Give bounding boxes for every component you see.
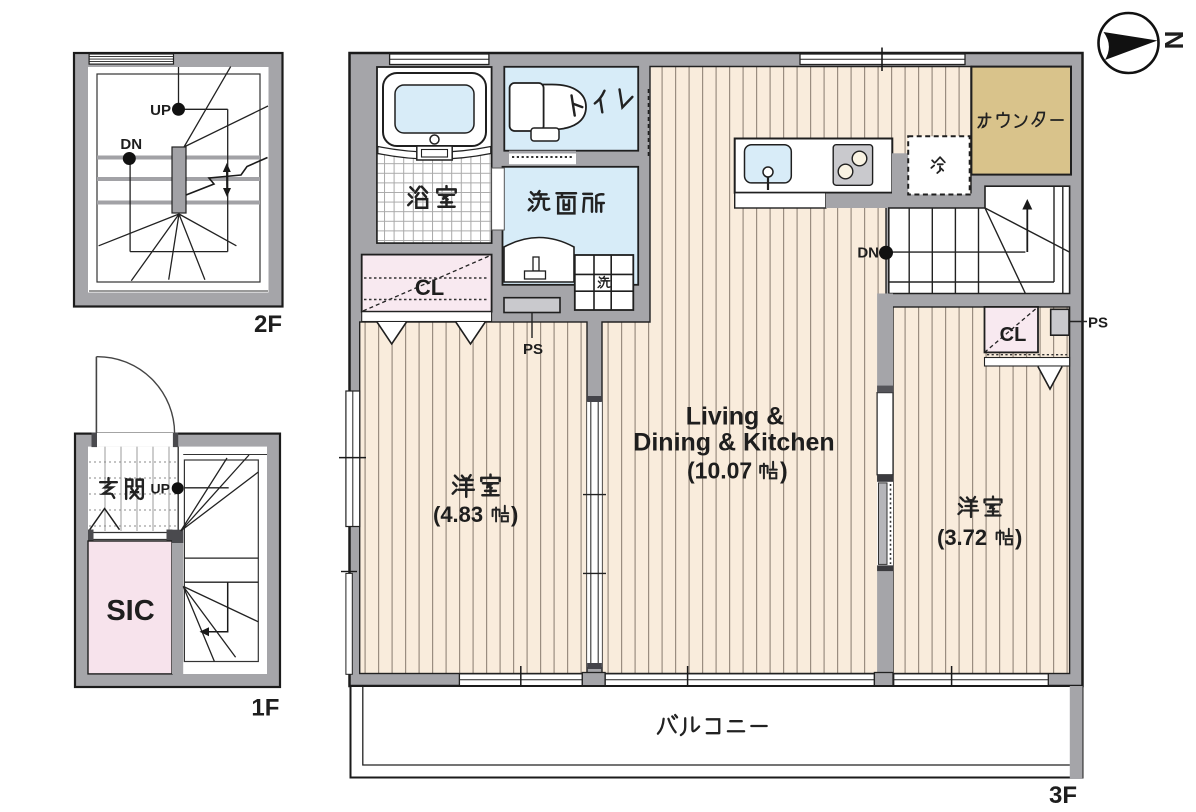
svg-text:UP: UP xyxy=(151,481,170,497)
svg-text:CL: CL xyxy=(415,275,444,300)
svg-text:(4.83: (4.83 xyxy=(433,502,483,527)
svg-text:2F: 2F xyxy=(254,311,282,338)
svg-text:): ) xyxy=(780,458,788,484)
svg-text:PS: PS xyxy=(1088,315,1108,332)
svg-text:3F: 3F xyxy=(1049,782,1077,809)
svg-text:CL: CL xyxy=(1000,324,1027,346)
svg-text:): ) xyxy=(1015,525,1022,550)
svg-text:UP: UP xyxy=(150,102,171,119)
svg-text:PS: PS xyxy=(523,341,543,358)
svg-text:(10.07: (10.07 xyxy=(687,458,752,484)
svg-text:Dining & Kitchen: Dining & Kitchen xyxy=(633,429,834,457)
svg-text:SIC: SIC xyxy=(106,595,154,627)
svg-text:(3.72: (3.72 xyxy=(937,525,987,550)
svg-text:DN: DN xyxy=(857,245,879,262)
svg-text:1F: 1F xyxy=(251,695,279,722)
svg-text:DN: DN xyxy=(120,136,142,153)
svg-text:): ) xyxy=(511,502,518,527)
svg-text:N: N xyxy=(1159,31,1189,50)
svg-text:Living &: Living & xyxy=(686,403,785,431)
